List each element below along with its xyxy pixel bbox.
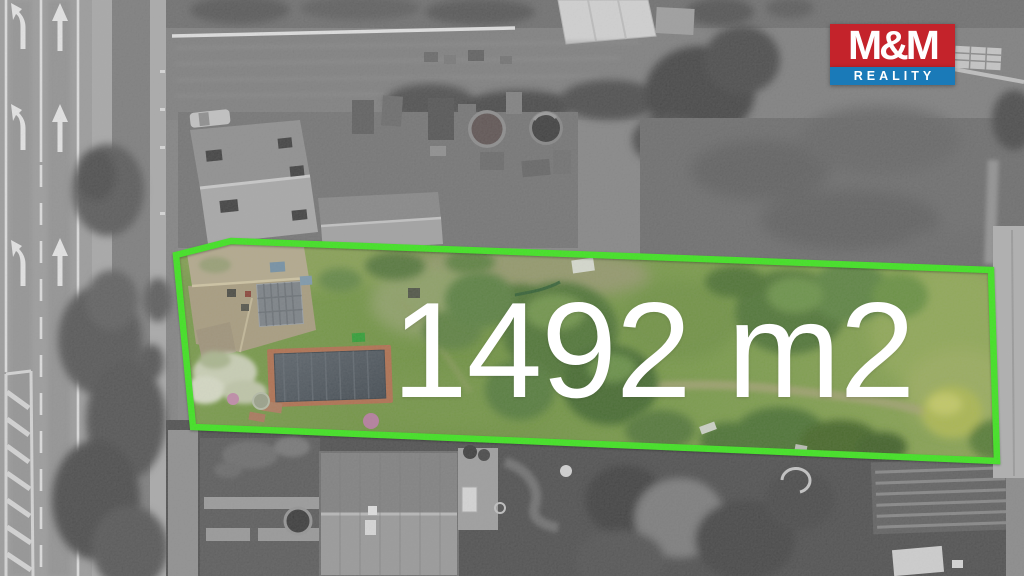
aerial-photo: 1492 m2 M&M REALITY	[0, 0, 1024, 576]
agency-logo-name: M&M	[830, 24, 955, 67]
area-label: 1492 m2	[392, 282, 914, 418]
agency-logo: M&M REALITY	[830, 24, 955, 85]
agency-logo-subtitle: REALITY	[830, 67, 955, 85]
